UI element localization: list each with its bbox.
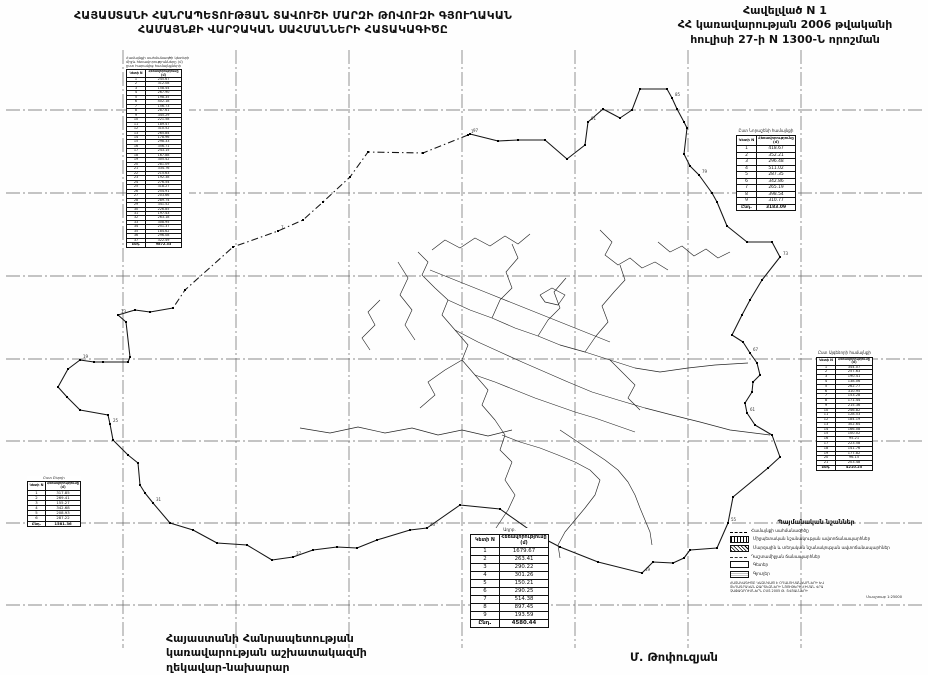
table-caption: Համայնքի սահմանագծի կետերի միջև հեռավորո…: [126, 56, 189, 68]
river-road-line: [455, 330, 770, 435]
river-icon: [730, 561, 749, 568]
boundary-point: [671, 97, 673, 99]
boundary-point: [754, 424, 756, 426]
legend-item: Գյուղեր: [730, 571, 902, 578]
boundary-point: [689, 165, 691, 167]
appendix-note: Հավելված N 1 ՀՀ կառավարության 2006 թվակա…: [648, 4, 922, 47]
boundary-point: [727, 522, 729, 524]
boundary-point: [499, 508, 501, 510]
river-road-line: [492, 244, 518, 318]
boundary-point-number: 43: [430, 522, 436, 527]
boundary-point: [102, 361, 104, 363]
boundary-point-number: 85: [675, 92, 681, 97]
boundary-point: [57, 386, 59, 388]
boundary-point: [711, 192, 713, 194]
boundary-point: [169, 522, 171, 524]
coordinate-table: Կետի NՀեռավորությունը (մ)1344.072257.633…: [816, 357, 873, 471]
table-caption: Ըստ Նորաշենի համայնքի: [736, 129, 796, 134]
community-boundary-dashed: [173, 135, 468, 308]
legend-item-label: Գետեր: [753, 563, 768, 567]
boundary-point: [689, 549, 691, 551]
boundary-point: [761, 279, 763, 281]
boundary-point: [544, 139, 546, 141]
map-title-line2: ՀԱՄԱՅՆՔԻ ՎԱՐՉԱԿԱՆ ՍԱՀՄԱՆՆԵՐԻ ՀԱՏԱԿԱԳԻԾԸ: [58, 23, 528, 37]
boundary-table-right-middle: Ըստ Այգեձորի համայնքի Կետի NՀեռավորությո…: [816, 351, 873, 471]
boundary-point: [192, 529, 194, 531]
boundary-point: [716, 201, 718, 203]
boundary-point: [559, 546, 561, 548]
boundary-point: [751, 391, 753, 393]
attribution: Հայաստանի Հանրապետության կառավարության ա…: [166, 632, 367, 675]
boundary-point: [597, 561, 599, 563]
boundary-point-number: 79: [702, 169, 708, 174]
road-interstate-icon: [730, 536, 749, 543]
boundary-point: [759, 374, 761, 376]
boundary-point: [566, 158, 568, 160]
boundary-point: [756, 362, 758, 364]
coordinate-table: Կետի NՀեռավորությունը (մ)1418.672352.213…: [736, 135, 796, 211]
table-row: 9193.59: [471, 612, 549, 620]
legend-scale: Մասշտաբ 1:25000: [730, 595, 902, 599]
table-total-row: Ընդ.3183.09: [737, 204, 796, 211]
river-road-line: [585, 265, 625, 352]
boundary-point: [683, 557, 685, 559]
boundary-point: [125, 321, 127, 323]
legend-item-label: Դաշտամիջյան ճանապարհներ: [751, 555, 820, 559]
river-road-line: [658, 242, 730, 258]
boundary-point: [137, 462, 139, 464]
boundary-point: [134, 309, 136, 311]
boundary-point: [139, 484, 141, 486]
table-row: 4301.26: [471, 572, 549, 580]
table-caption: Ըստ Այգեձորի համայնքի: [816, 351, 873, 356]
boundary-point: [732, 496, 734, 498]
map-title: ՀԱՅԱՍՏԱՆԻ ՀԱՆՐԱՊԵՏՈՒԹՅԱՆ ՏԱՎՈՒՇԻ ՄԱՐԶԻ Թ…: [58, 9, 528, 38]
legend-item: Համայնքի սահմանագիծը: [730, 529, 902, 533]
boundary-point: [459, 504, 461, 506]
boundary-point: [469, 133, 471, 135]
boundary-point: [117, 314, 119, 316]
river-road-line: [538, 278, 566, 336]
boundary-point-number: 7: [281, 225, 284, 230]
boundary-point: [144, 492, 146, 494]
legend-item: Գետեր: [730, 561, 902, 568]
table-row: 5150.21: [471, 580, 549, 588]
boundary-line-icon: [730, 532, 747, 533]
boundary-point: [367, 151, 369, 153]
river-road-line: [432, 234, 530, 250]
boundary-point: [426, 527, 428, 529]
river-road-line: [448, 300, 748, 372]
table-row: 3290.22: [471, 564, 549, 572]
river-road-line: [600, 230, 668, 270]
boundary-point: [666, 88, 668, 90]
boundary-table-left-small: Ըստ Բերդի Կետի NՀեռավորությունը (մ)1317.…: [27, 476, 81, 527]
legend-item-label: Համայնքի սահմանագիծը: [751, 529, 809, 533]
boundary-point-number: 49: [645, 567, 651, 572]
table-caption: Ադրբ.: [470, 528, 549, 533]
boundary-point: [216, 542, 218, 544]
legend-item-label: Մարզային և տեղական նշանակության ավտոճանա…: [753, 546, 890, 550]
village-icon: [730, 571, 749, 578]
legend-title: Պայմանական նշաններ: [730, 519, 902, 526]
boundary-point: [652, 561, 654, 563]
legend-item: Մարզային և տեղական նշանակության ավտոճանա…: [730, 545, 902, 552]
boundary-point: [741, 314, 743, 316]
boundary-point: [716, 547, 718, 549]
boundary-point: [749, 299, 751, 301]
river-road-line: [420, 360, 462, 408]
boundary-point: [683, 121, 685, 123]
boundary-point: [746, 412, 748, 414]
map-title-line1: ՀԱՅԱՍՏԱՆԻ ՀԱՆՐԱՊԵՏՈՒԹՅԱՆ ՏԱՎՈՒՇԻ ՄԱՐԶԻ Թ…: [58, 9, 528, 23]
boundary-point-number: 97: [473, 128, 479, 133]
boundary-point-number: 61: [750, 407, 756, 412]
boundary-point: [749, 352, 751, 354]
boundary-point: [631, 109, 633, 111]
distance-table: Կետի NՀեռավորությունը (մ)11679.672263.41…: [470, 534, 549, 629]
boundary-point: [322, 201, 324, 203]
river-road-line: [540, 288, 565, 305]
field-road-icon: [730, 557, 747, 558]
boundary-point: [517, 139, 519, 141]
boundary-point: [109, 423, 111, 425]
boundary-table-bottom-center: Ադրբ. Կետի NՀեռավորությունը (մ)11679.672…: [470, 528, 549, 628]
river-road-line: [475, 375, 635, 432]
boundary-point: [619, 117, 621, 119]
legend: Պայմանական նշաններ Համայնքի սահմանագիծըՄ…: [730, 519, 902, 599]
river-road-line: [398, 262, 415, 340]
boundary-point: [771, 241, 773, 243]
boundary-table-right-upper: Ըստ Նորաշենի համայնքի Կետի NՀեռավորությո…: [736, 129, 796, 211]
boundary-point: [292, 556, 294, 558]
boundary-point: [312, 549, 314, 551]
boundary-point-number: 73: [783, 251, 789, 256]
legend-items: Համայնքի սահմանագիծըՄիջպետական նշանակութ…: [730, 529, 902, 578]
boundary-point-number: 13: [121, 309, 127, 314]
boundary-point: [731, 334, 733, 336]
boundary-point: [639, 88, 641, 90]
table-total-row: Ընդ.4580.44: [471, 620, 549, 628]
table-caption: Ըստ Բերդի: [27, 476, 81, 480]
coordinate-table: Կետի NՀեռավորությունը (մ)11679.672263.41…: [470, 534, 549, 629]
boundary-point: [79, 359, 81, 361]
boundary-point: [112, 439, 114, 441]
table-total-row: Ընդ.4210.25: [817, 465, 873, 470]
boundary-point: [349, 176, 351, 178]
boundary-point: [246, 544, 248, 546]
table-row: 6290.25: [471, 588, 549, 596]
boundary-point: [676, 108, 678, 110]
distance-table: Կետի NՀեռավորությունը (մ)1344.072257.633…: [816, 357, 873, 471]
boundary-point: [127, 454, 129, 456]
boundary-point: [602, 108, 604, 110]
boundary-point: [66, 396, 68, 398]
boundary-point: [129, 356, 131, 358]
boundary-point: [752, 381, 754, 383]
coordinate-table: Կետի NՀեռավորությունը (մ)1317.852269.413…: [27, 481, 81, 527]
coordinate-table: Կետի NՀեռավորությունը (մ)1245.672312.083…: [126, 69, 182, 247]
legend-item-label: Միջպետական նշանակության ավտոճանապարհներ: [753, 537, 870, 541]
boundary-point: [152, 502, 154, 504]
boundary-point: [672, 562, 674, 564]
boundary-point: [376, 539, 378, 541]
boundary-point: [779, 256, 781, 258]
distance-table: Կետի NՀեռավորությունը (մ)1317.852269.413…: [27, 481, 81, 527]
boundary-point: [746, 241, 748, 243]
table-row: 8897.45: [471, 604, 549, 612]
road-regional-icon: [730, 545, 749, 552]
boundary-table-left-tall: Համայնքի սահմանագծի կետերի միջև հեռավորո…: [126, 56, 189, 248]
boundary-point: [698, 174, 700, 176]
boundary-point: [107, 414, 109, 416]
boundary-point-number: 31: [156, 497, 162, 502]
boundary-point: [767, 467, 769, 469]
boundary-point: [356, 547, 358, 549]
boundary-point: [422, 152, 424, 154]
legend-item: Միջպետական նշանակության ավտոճանապարհներ: [730, 536, 902, 543]
boundary-point: [771, 434, 773, 436]
scanned-map-sheet: 17131925313743495561677379859197 ՀԱՅԱՍՏԱ…: [0, 0, 928, 675]
boundary-point: [149, 311, 151, 313]
boundary-point: [302, 219, 304, 221]
boundary-point: [277, 230, 279, 232]
boundary-point: [641, 572, 643, 574]
boundary-point: [271, 559, 273, 561]
boundary-point: [409, 529, 411, 531]
boundary-point-number: 25: [113, 418, 119, 423]
boundary-point: [686, 127, 688, 129]
legend-item-label: Գյուղեր: [753, 572, 770, 576]
boundary-point-number: 67: [753, 347, 759, 352]
table-row: 7514.38: [471, 596, 549, 604]
table-total-row: Ընդ.1581.36: [28, 521, 81, 526]
legend-item: Դաշտամիջյան ճանապարհներ: [730, 555, 902, 559]
boundary-point: [779, 456, 781, 458]
river-road-line: [560, 430, 652, 545]
table-row: 11679.67: [471, 548, 549, 556]
boundary-point: [742, 341, 744, 343]
boundary-point: [683, 153, 685, 155]
signature: Մ. Թոփուզյան: [630, 650, 718, 664]
distance-table: Կետի NՀեռավորությունը (մ)1245.672312.083…: [126, 69, 189, 247]
boundary-point: [184, 289, 186, 291]
legend-notes: ՀԱՏԱԿԱԳԻԾԸ ԿԱԶՄՎԱԾ Է ՕԴԱԼՈՒՍԱՆԿԱՐՆԵՐԻ ԵՎ…: [730, 581, 902, 594]
boundary-point: [172, 307, 174, 309]
boundary-point: [587, 121, 589, 123]
boundary-point: [336, 546, 338, 548]
boundary-point: [93, 361, 95, 363]
river-road-line: [610, 360, 640, 410]
boundary-point: [127, 361, 129, 363]
boundary-point: [584, 144, 586, 146]
boundary-point-number: 91: [591, 116, 597, 121]
boundary-point: [232, 246, 234, 248]
river-road-line: [300, 427, 512, 436]
boundary-point: [497, 140, 499, 142]
boundary-point: [726, 225, 728, 227]
boundary-point: [744, 402, 746, 404]
boundary-point: [467, 134, 469, 136]
boundary-point-number: 37: [296, 551, 302, 556]
boundary-point-number: 19: [83, 354, 89, 359]
table-total-row: Ընդ.9872.33: [127, 243, 182, 247]
table-row: 2263.41: [471, 556, 549, 564]
boundary-point: [67, 368, 69, 370]
distance-table: Կետի NՀեռավորությունը (մ)1418.672352.213…: [736, 135, 796, 211]
river-road-line: [362, 300, 380, 350]
boundary-point: [79, 409, 81, 411]
